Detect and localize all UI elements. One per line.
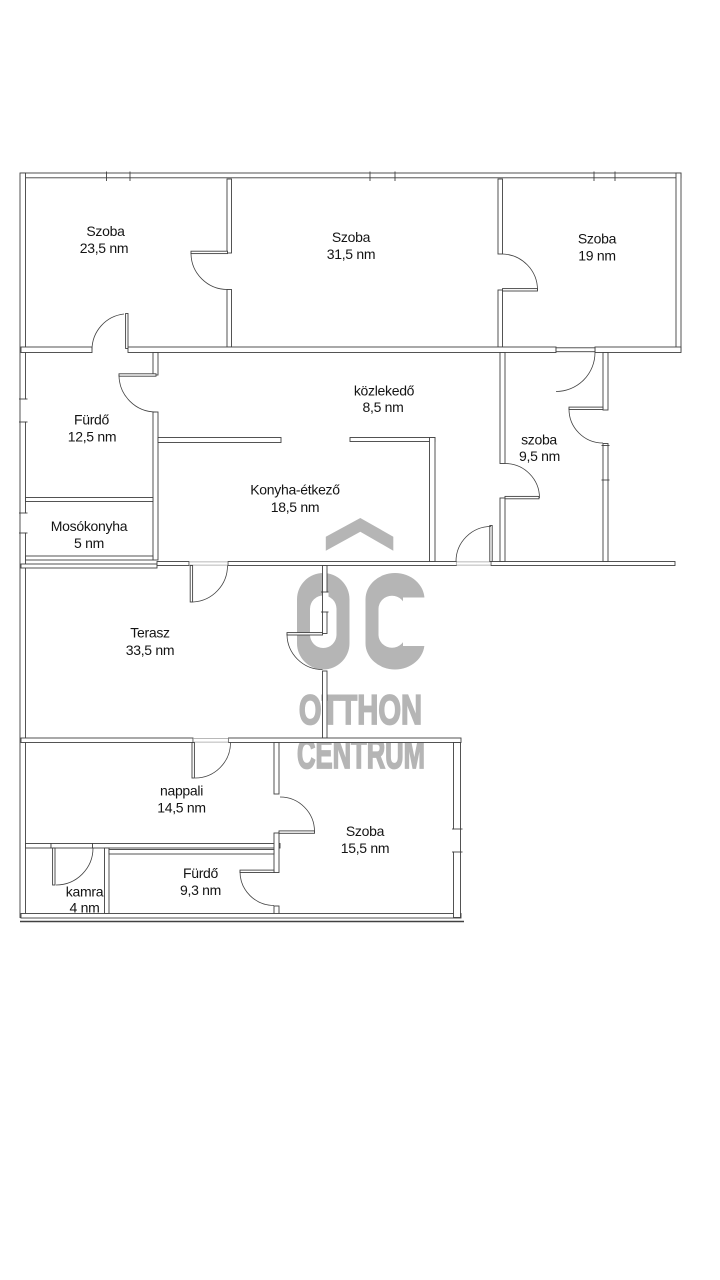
svg-text:12,5 nm: 12,5 nm xyxy=(68,429,117,445)
svg-text:kamra: kamra xyxy=(66,884,104,900)
svg-text:9,3 nm: 9,3 nm xyxy=(180,882,221,898)
svg-text:8,5 nm: 8,5 nm xyxy=(363,399,404,415)
svg-text:közlekedő: közlekedő xyxy=(354,383,415,399)
svg-text:Terasz: Terasz xyxy=(130,625,170,641)
svg-text:nappali: nappali xyxy=(160,783,203,799)
svg-text:szoba: szoba xyxy=(521,432,557,448)
svg-text:15,5 nm: 15,5 nm xyxy=(341,840,390,856)
svg-text:23,5 nm: 23,5 nm xyxy=(80,240,129,256)
svg-text:Fürdő: Fürdő xyxy=(183,865,219,881)
svg-text:4 nm: 4 nm xyxy=(70,900,100,916)
svg-text:19 nm: 19 nm xyxy=(578,248,615,264)
svg-text:18,5 nm: 18,5 nm xyxy=(271,499,320,515)
svg-text:OTTHON: OTTHON xyxy=(299,686,422,734)
svg-text:Szoba: Szoba xyxy=(346,823,385,839)
svg-text:33,5 nm: 33,5 nm xyxy=(126,642,175,658)
svg-text:Szoba: Szoba xyxy=(578,231,617,247)
svg-text:Konyha-étkező: Konyha-étkező xyxy=(250,482,340,498)
svg-text:5 nm: 5 nm xyxy=(74,535,104,551)
svg-text:14,5 nm: 14,5 nm xyxy=(157,800,206,816)
svg-text:Szoba: Szoba xyxy=(332,229,371,245)
svg-text:9,5 nm: 9,5 nm xyxy=(519,448,560,464)
svg-text:31,5 nm: 31,5 nm xyxy=(327,246,376,262)
svg-text:Mosókonyha: Mosókonyha xyxy=(51,518,128,534)
svg-text:Fürdő: Fürdő xyxy=(74,412,110,428)
svg-text:Szoba: Szoba xyxy=(86,223,125,239)
